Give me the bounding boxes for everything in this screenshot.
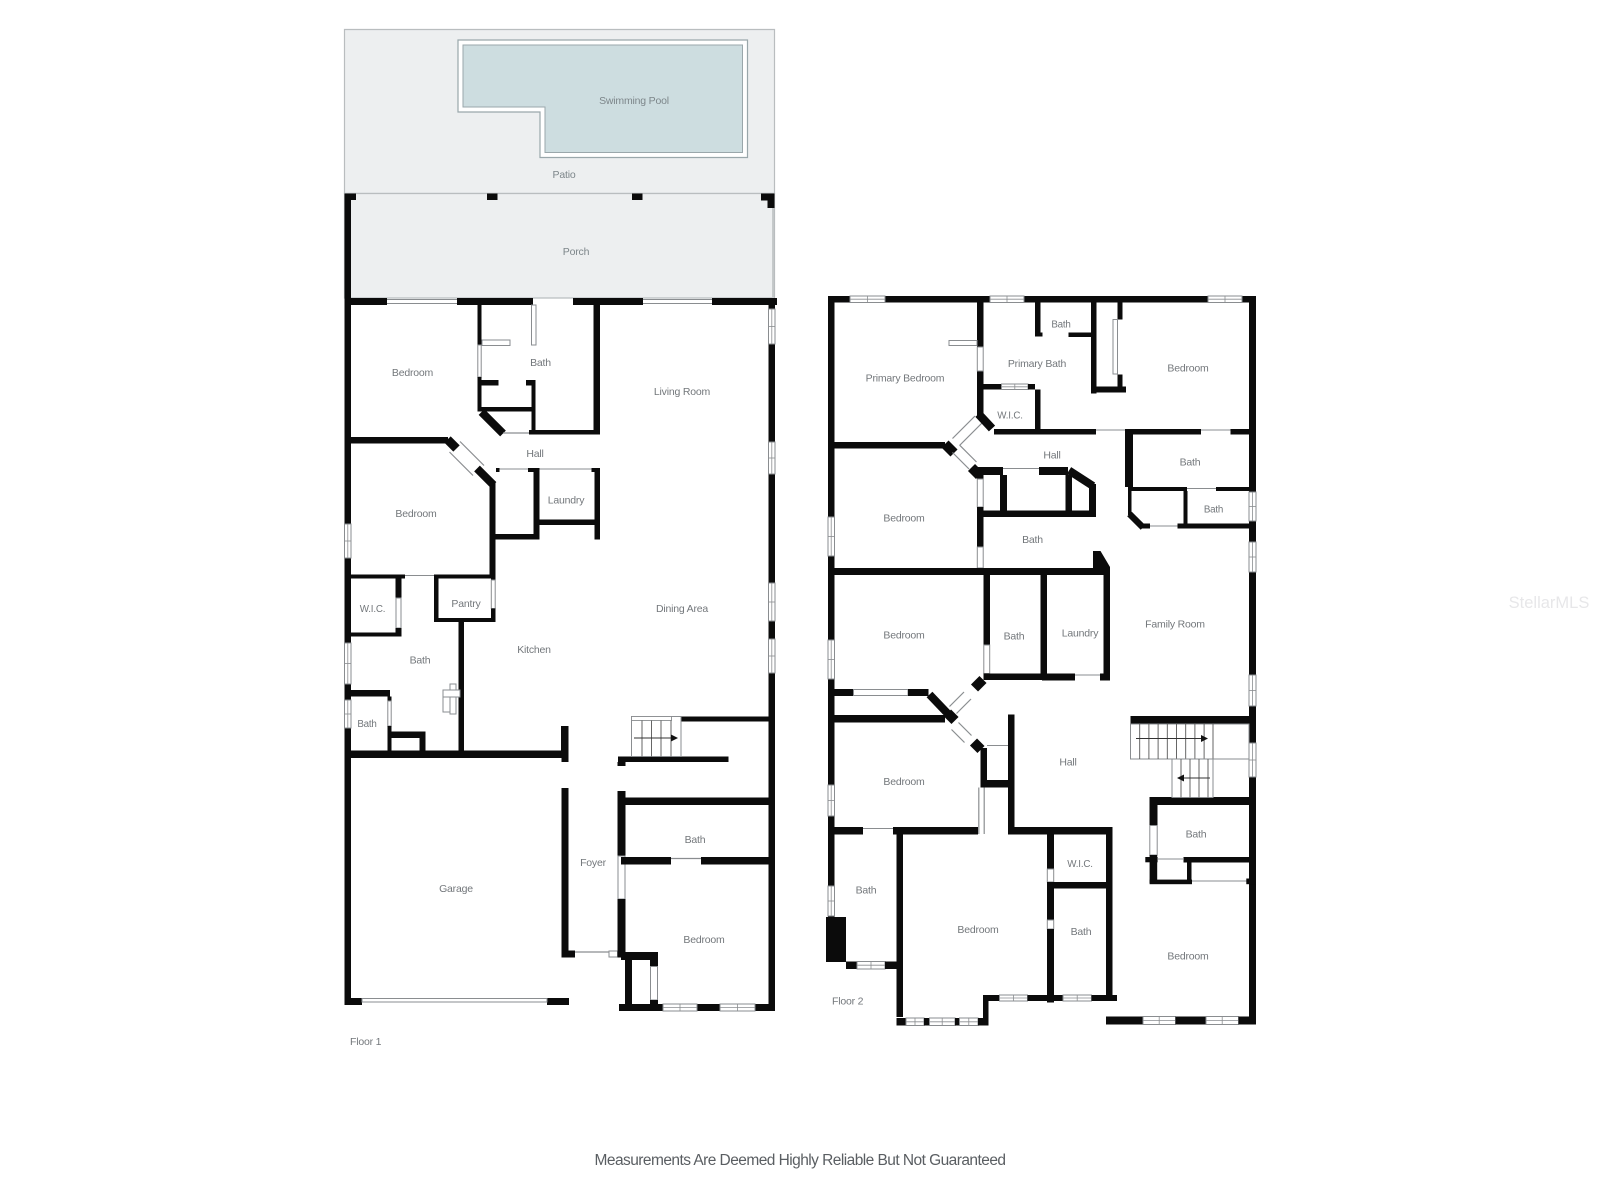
svg-text:Laundry: Laundry: [1062, 628, 1099, 640]
svg-text:Family Room: Family Room: [1145, 619, 1205, 631]
svg-text:Kitchen: Kitchen: [517, 644, 551, 656]
svg-text:Bath: Bath: [856, 885, 877, 897]
svg-text:Bath: Bath: [1071, 926, 1092, 938]
svg-text:Foyer: Foyer: [580, 857, 607, 869]
svg-text:Hall: Hall: [526, 448, 543, 460]
svg-text:Primary Bedroom: Primary Bedroom: [866, 373, 945, 385]
svg-text:Primary Bath: Primary Bath: [1008, 358, 1067, 370]
svg-text:Bath: Bath: [1186, 829, 1207, 841]
svg-text:Porch: Porch: [563, 246, 590, 258]
svg-text:Bath: Bath: [1022, 534, 1043, 546]
svg-text:Bath: Bath: [1051, 320, 1070, 331]
svg-text:Bedroom: Bedroom: [392, 367, 434, 379]
svg-text:Hall: Hall: [1059, 757, 1076, 769]
svg-text:Bedroom: Bedroom: [883, 630, 925, 642]
svg-text:Patio: Patio: [553, 169, 576, 181]
svg-text:Bath: Bath: [685, 834, 706, 846]
svg-text:W.I.C.: W.I.C.: [1067, 859, 1092, 870]
svg-text:Pantry: Pantry: [451, 598, 481, 610]
svg-text:Bedroom: Bedroom: [1167, 951, 1209, 963]
svg-text:Garage: Garage: [439, 883, 473, 895]
svg-text:Living Room: Living Room: [654, 386, 711, 398]
svg-text:Bedroom: Bedroom: [683, 934, 725, 946]
svg-text:StellarMLS: StellarMLS: [1509, 594, 1590, 612]
svg-text:Bedroom: Bedroom: [883, 776, 925, 788]
svg-text:Floor 1: Floor 1: [350, 1036, 382, 1048]
svg-text:Bath: Bath: [1204, 505, 1223, 516]
svg-text:Floor 2: Floor 2: [832, 996, 864, 1008]
svg-text:Bath: Bath: [357, 719, 376, 730]
svg-text:W.I.C.: W.I.C.: [997, 411, 1022, 422]
svg-text:Bath: Bath: [410, 655, 431, 667]
svg-text:Bedroom: Bedroom: [883, 513, 925, 525]
svg-text:Bedroom: Bedroom: [957, 924, 999, 936]
svg-text:Bath: Bath: [530, 357, 551, 369]
svg-text:Swimming Pool: Swimming Pool: [599, 95, 669, 107]
svg-text:Bedroom: Bedroom: [395, 508, 437, 520]
svg-text:Measurements Are Deemed Highly: Measurements Are Deemed Highly Reliable …: [595, 1152, 1006, 1169]
svg-text:Bedroom: Bedroom: [1167, 363, 1209, 375]
svg-text:Dining Area: Dining Area: [656, 603, 708, 615]
svg-text:W.I.C.: W.I.C.: [360, 604, 385, 615]
svg-text:Bath: Bath: [1004, 631, 1025, 643]
svg-text:Laundry: Laundry: [548, 495, 585, 507]
svg-text:Hall: Hall: [1043, 450, 1060, 462]
svg-text:Bath: Bath: [1180, 457, 1201, 469]
